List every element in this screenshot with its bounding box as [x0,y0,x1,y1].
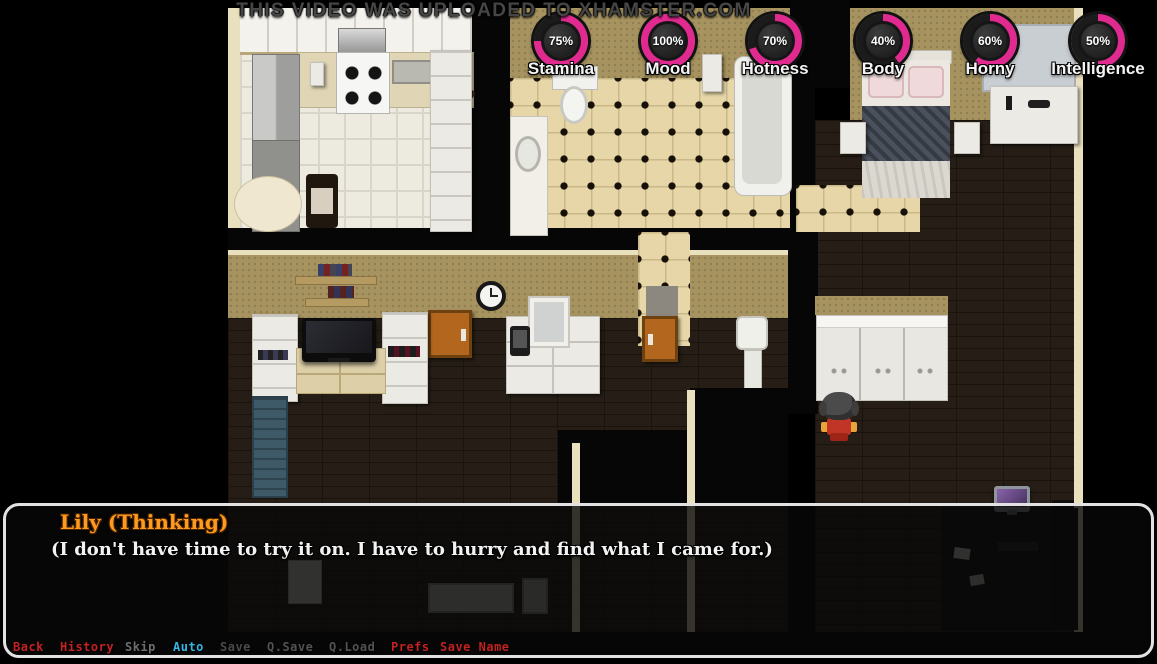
chair-cushion [311,188,333,214]
bath-mat [646,286,678,316]
wardrobe-handles [817,368,947,374]
game-window: THIS VIDEO WAS UPLOADED TO XHAMSTER.COM … [0,0,1157,664]
bath-vanity [510,116,548,236]
stat-horny: 60% Horny [930,14,1050,79]
books-bottom [328,286,354,298]
clock-hand-hour [491,295,498,297]
vanity-dresser [990,86,1078,144]
bath-sink [515,136,541,172]
dresser-mirror [528,296,570,348]
stat-label: Horny [930,59,1050,79]
stat-value: 75% [549,34,573,48]
fridge [252,54,300,142]
quickmenu-auto[interactable]: Auto [173,640,204,654]
quickmenu-save[interactable]: Save [220,640,251,654]
character-legs [830,433,848,441]
tv [302,318,376,362]
wall-closet-left [788,228,818,414]
pedestal-sink-top [736,316,768,350]
hall-wall [228,255,788,318]
tv-screen [306,321,372,353]
outlet-panel [310,62,324,86]
bookcase-left-items [258,350,288,360]
stat-value: 100% [653,34,684,48]
stat-label: Mood [608,59,728,79]
quickmenu-qsave[interactable]: Q.Save [267,640,313,654]
bed-blanket [862,106,950,161]
wall-shelf-bottom [305,298,369,307]
character-hand-right [850,422,857,432]
pantry-cabinet [430,50,472,232]
bookcase-right-items [388,346,420,357]
quickmenu-qload[interactable]: Q.Load [329,640,375,654]
watermark-text: THIS VIDEO WAS UPLOADED TO XHAMSTER.COM [208,0,780,22]
toilet-bowl [560,86,588,124]
books-top [318,264,352,276]
closet-back-wall [815,296,948,315]
quickmenu-history[interactable]: History [60,640,114,654]
stat-stamina: 75% Stamina [501,14,621,79]
hall-door-left [428,310,472,358]
nightstand-left [840,122,866,154]
bathtub-basin [742,66,782,184]
stove [336,52,390,114]
stat-mood: 100% Mood [608,14,728,79]
stat-intelligence: 50% Intelligence [1038,14,1157,79]
speaker-name: Lily (Thinking) [60,510,228,534]
mirror-glass [534,302,564,342]
couch [252,396,288,498]
character-hair-puff-left [819,401,827,416]
stat-label: Hotness [715,59,835,79]
hand-mirror [510,326,530,356]
bookcase-right [382,312,428,404]
stat-value: 50% [1086,34,1110,48]
stat-label: Intelligence [1038,59,1157,79]
wardrobe-top-shelf [817,316,947,328]
quickmenu-prefs[interactable]: Prefs [391,640,430,654]
player-character [820,392,858,442]
quickmenu-skip[interactable]: Skip [125,640,156,654]
wardrobes [816,315,948,401]
quickmenu-back[interactable]: Back [13,640,44,654]
perfume-bottles [1006,96,1012,110]
wall-shelf-top [295,276,377,285]
hall-door-right [642,316,678,362]
tv-stand [328,358,350,362]
nightstand-right [954,122,980,154]
lower-wall-right [690,388,788,505]
dialogue-box[interactable]: Lily (Thinking) (I don't have time to tr… [3,503,1154,658]
stat-value: 70% [763,34,787,48]
character-hair-puff-right [851,401,859,416]
wall-clock [476,281,506,311]
stat-hotness: 70% Hotness [715,14,835,79]
kitchen-table [234,176,302,232]
stat-label: Stamina [501,59,621,79]
door-plate [461,329,466,341]
quickmenu-savename[interactable]: Save Name [440,640,510,654]
dialogue-text: (I don't have time to try it on. I have … [51,539,773,560]
stat-body: 40% Body [823,14,943,79]
stat-value: 60% [978,34,1002,48]
door-plate [648,334,653,345]
stat-label: Body [823,59,943,79]
hand-mirror-glass [513,330,527,348]
stat-value: 40% [871,34,895,48]
bed-sheet [862,161,950,198]
hairdryer [1028,100,1050,108]
